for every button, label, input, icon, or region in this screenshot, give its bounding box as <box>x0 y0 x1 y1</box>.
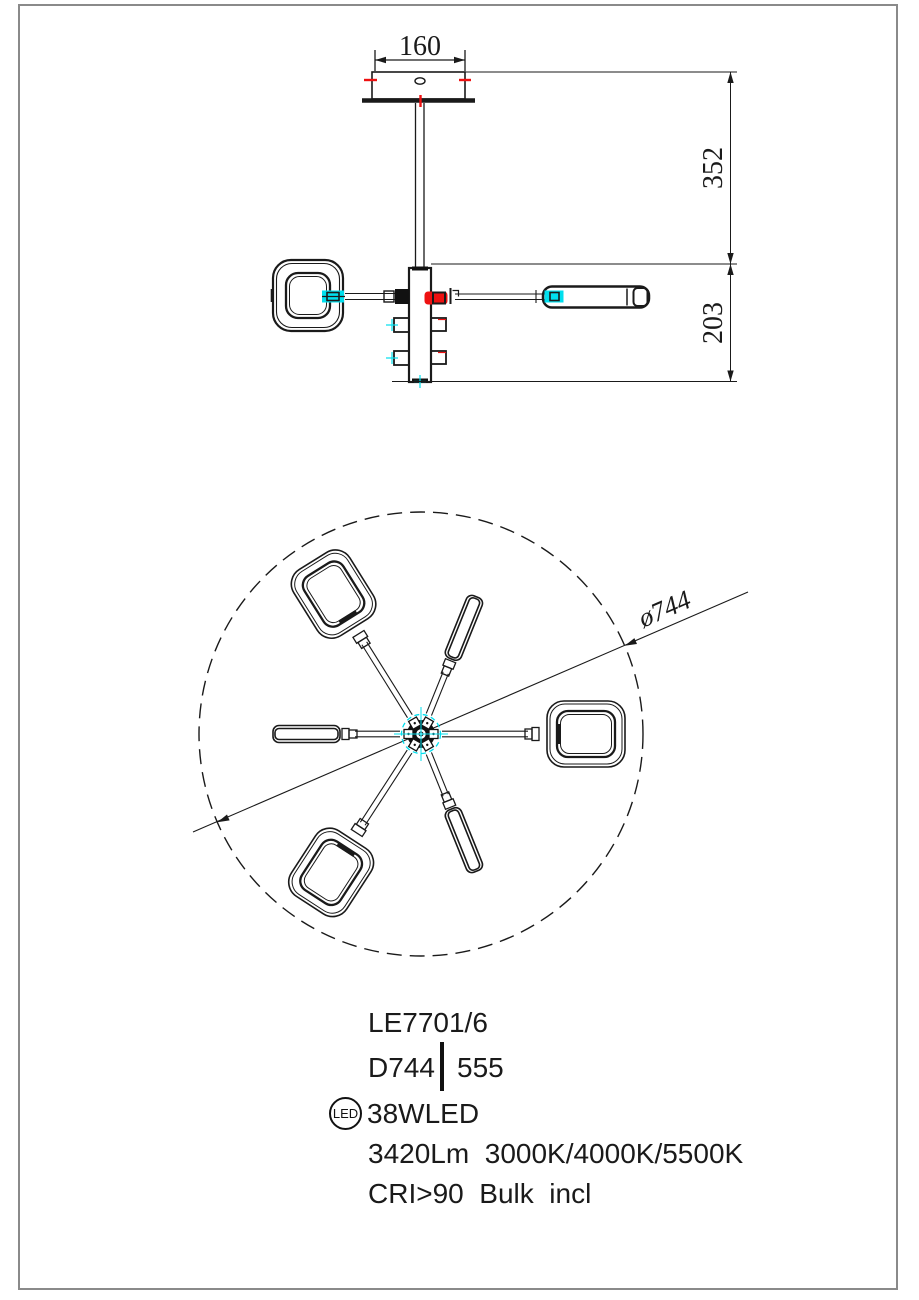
product-wattage: 38WLED <box>367 1099 479 1130</box>
arrowhead <box>727 253 733 264</box>
plan-arm-bar <box>273 726 400 743</box>
arrowhead <box>625 638 637 646</box>
product-cri: CRI>90 Bulk incl <box>368 1179 591 1210</box>
led-badge: LED <box>329 1097 362 1130</box>
center-hub-side <box>386 267 446 389</box>
canopy-hole <box>415 78 425 84</box>
plan-arm-bar <box>421 750 484 874</box>
red-socket-marks <box>438 320 446 353</box>
cyan-hub-marks <box>394 707 448 761</box>
plan-arm-bar <box>421 594 484 718</box>
center-hub-plan <box>394 707 448 761</box>
side-arm-right <box>455 290 545 303</box>
hanging-rod <box>416 103 425 268</box>
product-diameter: D744 <box>368 1053 435 1084</box>
arrowhead <box>217 815 229 823</box>
side-arm-left <box>345 289 409 304</box>
spec-divider-bar <box>440 1042 444 1091</box>
dim-canopy-width: 160 <box>375 31 465 71</box>
arrowhead <box>454 57 465 63</box>
product-height: 555 <box>457 1053 504 1084</box>
product-lumens: 3420Lm 3000K/4000K/5500K <box>368 1139 743 1170</box>
bar-lamp-side <box>543 287 649 308</box>
ceiling-canopy <box>362 72 475 107</box>
side-view: 160 <box>272 31 738 388</box>
diameter-dimension: ø744 <box>193 584 748 832</box>
dim-height-lower-label: 203 <box>698 302 729 344</box>
ring-lamp-side <box>272 260 346 331</box>
led-badge-label: LED <box>333 1106 358 1121</box>
cyan-connector <box>322 291 345 303</box>
plan-arm-ring <box>285 544 438 734</box>
arrowhead <box>727 371 733 382</box>
plan-view: ø744 <box>193 512 748 956</box>
dim-diameter-label: ø744 <box>633 584 695 633</box>
plan-arm-ring <box>282 734 437 923</box>
dim-canopy-width-label: 160 <box>399 31 441 62</box>
dim-drop-heights: 352 203 <box>392 72 737 382</box>
arrowhead <box>727 264 733 275</box>
red-connector <box>425 288 459 305</box>
product-model: LE7701/6 <box>368 1008 488 1039</box>
dim-height-upper-label: 352 <box>698 147 729 189</box>
plan-arm-ring <box>442 701 625 767</box>
arrowhead <box>727 72 733 83</box>
cyan-center-marks <box>386 319 426 388</box>
technical-drawing-page: 160 <box>0 0 919 1300</box>
arrowhead <box>375 57 386 63</box>
cyan-connector <box>545 291 564 303</box>
